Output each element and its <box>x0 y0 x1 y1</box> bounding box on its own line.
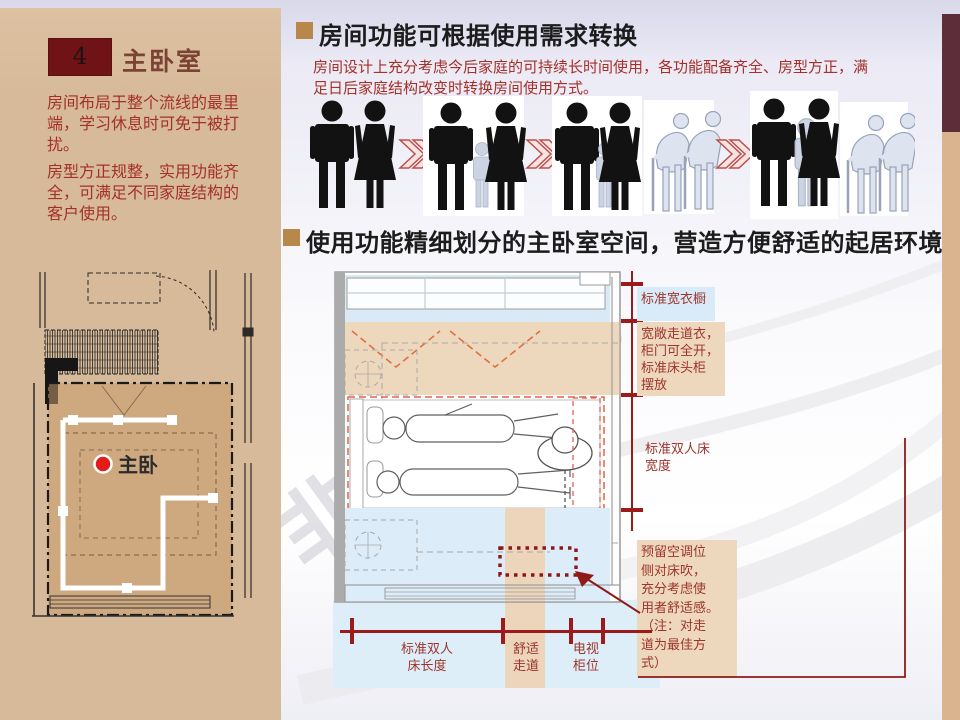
plan-left-wall <box>335 272 345 602</box>
ac-leader-arrow <box>570 565 655 625</box>
reference-bracket-line <box>634 432 910 682</box>
vertical-dimension-line <box>631 271 633 531</box>
section2-title: 使用功能精细划分的主卧室空间，营造方便舒适的起居环境 <box>306 223 943 258</box>
arrow-icon <box>717 140 754 168</box>
bedroom-plan-diagram <box>330 265 665 610</box>
room-label: 主卧 <box>118 453 158 477</box>
section1-bullet-icon <box>296 22 313 39</box>
sidebar-paragraph-2: 房型方正规整，实用功能齐 全，可满足不同家庭结构的 客户使用。 <box>47 162 267 225</box>
horizontal-dimension-line <box>340 630 652 633</box>
section1-title: 房间功能可根据使用需求转换 <box>319 16 638 51</box>
sidebar-floorplan: 主卧 <box>24 268 269 620</box>
edge-bar-tan <box>942 132 960 720</box>
plan-window-band <box>345 272 610 322</box>
dimension-tick <box>501 618 505 644</box>
section2-bullet-icon <box>283 229 300 246</box>
dimension-tick <box>350 618 354 644</box>
label-tv-cabinet: 电视 柜位 <box>563 640 609 674</box>
edge-bar-maroon <box>942 14 960 132</box>
annotation-walkway: 宽敞走道衣， 柜门可全开， 标准床头柜 摆放 <box>637 322 725 396</box>
plan-walkway-band <box>345 322 620 395</box>
section-number-box: 4 <box>48 38 112 76</box>
figures-stage-couple <box>310 101 396 209</box>
annotation-wardrobe: 标准宽衣橱 <box>637 287 715 321</box>
sidebar-paragraph-1: 房间布局于整个流线的最里 端，学习休息时可免于被打 扰。 <box>47 93 267 156</box>
dimension-tick <box>621 282 643 286</box>
family-evolution-row <box>300 90 915 222</box>
label-bed-length: 标准双人 床长度 <box>382 640 472 674</box>
sidebar-title: 主卧室 <box>122 42 203 78</box>
room-marker-dot <box>95 456 112 473</box>
label-comfort-walkway: 舒适 走道 <box>505 640 547 674</box>
